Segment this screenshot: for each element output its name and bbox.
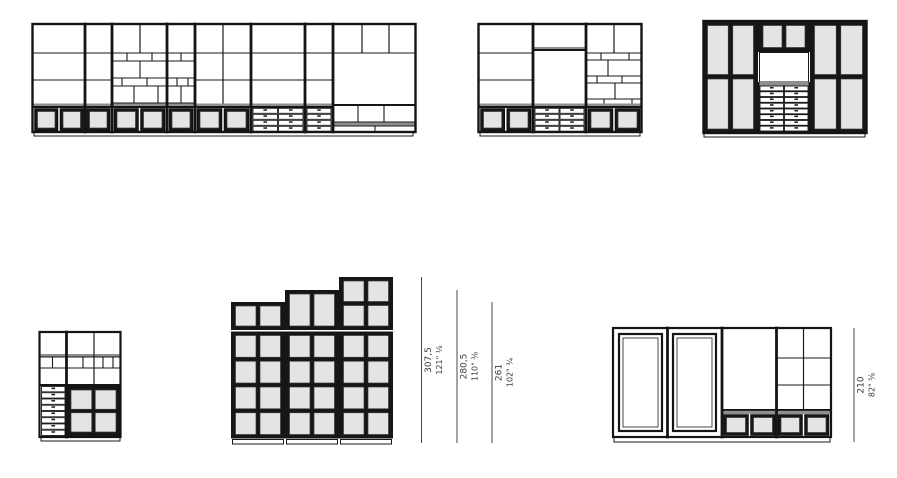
base-glass-doors: [778, 415, 829, 436]
unit-bottom-middle-stepped-cabinet: [231, 277, 393, 444]
base-glass-doors: [114, 109, 165, 132]
dimension-inch-label: 110" ⅜: [471, 352, 480, 381]
unit-bottom-right-sideboard: [613, 328, 831, 442]
dimension-inch-label: 102" ¾: [506, 358, 515, 387]
base-glass-door: [87, 109, 111, 132]
dimension-261: 261 102" ¾: [492, 302, 515, 443]
base-glass-door: [169, 109, 193, 132]
base-glass-doors: [588, 109, 640, 132]
dimension-inch-label: 82" ⅝: [868, 373, 877, 397]
dimension-280-5: 280,5 110" ⅜: [457, 290, 480, 443]
dimension-cm-label: 261: [495, 364, 505, 381]
unit-top-middle-wall-system: [479, 24, 642, 136]
center-drawer-stack: [760, 86, 808, 131]
base-drawers: [253, 108, 303, 131]
catalog-elevation-page: 307,5 121" ⅛ 280,5 110" ⅜ 261 102" ¾ 210…: [0, 0, 897, 478]
base-glass-doors: [724, 415, 776, 436]
dimension-cm-label: 307,5: [424, 347, 434, 373]
drawer-column: [42, 387, 66, 436]
base-drawers: [307, 108, 331, 131]
base-glass-doors: [481, 109, 532, 132]
elevation-drawings-canvas: 307,5 121" ⅛ 280,5 110" ⅜ 261 102" ¾ 210…: [0, 0, 897, 478]
dimension-210: 210 82" ⅝: [854, 328, 877, 442]
dimension-cm-label: 210: [857, 376, 867, 393]
dimension-inch-label: 121" ⅛: [435, 345, 444, 374]
base-glass-doors: [197, 109, 249, 132]
dimension-307-5: 307,5 121" ⅛: [422, 277, 445, 443]
base-drawers: [535, 108, 584, 131]
dimension-cm-label: 280,5: [460, 354, 470, 380]
unit-top-left-wall-system: [33, 24, 416, 136]
base-glass-doors: [35, 109, 84, 132]
unit-top-right-glass-cabinet: [703, 21, 867, 137]
unit-bottom-left-cabinet: [40, 332, 121, 441]
